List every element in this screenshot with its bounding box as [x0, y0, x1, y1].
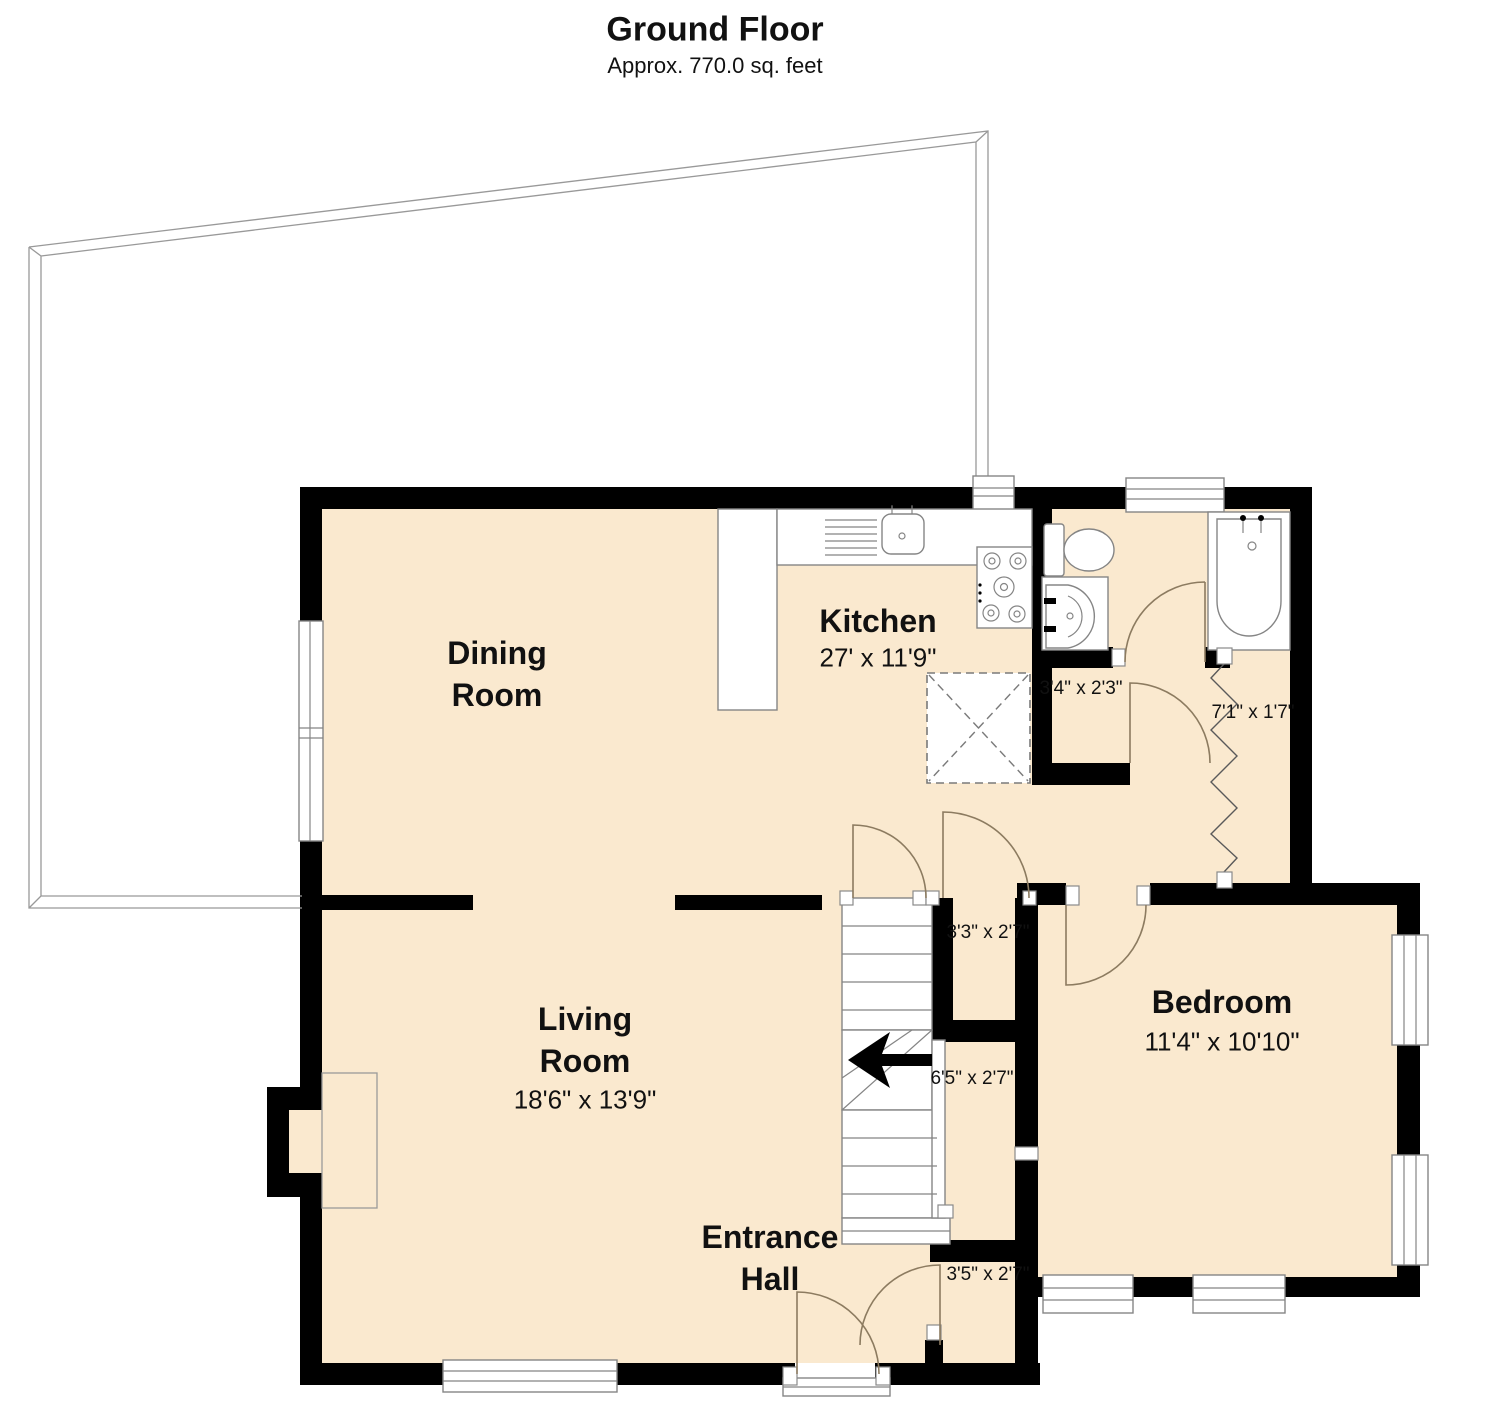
bedroom-window-east-upper	[1392, 935, 1428, 1045]
living-room-dims: 18'6" x 13'9"	[514, 1085, 657, 1116]
void-hatch-box	[927, 673, 1030, 783]
entrance-hall-label: Entrance Hall	[702, 1216, 839, 1300]
basin-icon	[1042, 577, 1108, 650]
fireplace-hearth	[322, 1073, 377, 1208]
bathtub-icon	[1208, 512, 1290, 650]
inner-hall-door-swing	[943, 812, 1029, 898]
dining-room-label: Dining Room	[447, 632, 547, 716]
hall-closet-dims: 6'5" x 2'7"	[930, 1068, 1013, 1090]
kitchen-dims: 27' x 11'9"	[820, 643, 937, 674]
bedroom-door-swing	[1066, 905, 1146, 985]
patio-doors	[299, 621, 323, 841]
entrance-hall-label-line1: Entrance	[702, 1216, 839, 1258]
page-subtitle: Approx. 770.0 sq. feet	[607, 53, 822, 79]
dining-room-label-line2: Room	[447, 674, 547, 716]
toilet-icon	[1044, 524, 1114, 576]
wc-lobby-door-swing	[1130, 683, 1210, 763]
living-room-label-line2: Room	[538, 1040, 632, 1082]
bedroom-label: Bedroom	[1152, 981, 1292, 1023]
zigzag-closet-front	[1211, 664, 1237, 872]
bedroom-dims: 11'4" x 10'10"	[1144, 1027, 1299, 1058]
airing-corridor-dims: 7'1" x 1'7"	[1211, 702, 1294, 724]
entry-closet-dims: 3'5" x 2'7"	[946, 1264, 1029, 1286]
entrance-hall-label-line2: Hall	[702, 1258, 839, 1300]
bedroom-window-east-lower	[1392, 1155, 1428, 1265]
living-room-window	[443, 1360, 617, 1392]
front-door-swing	[797, 1292, 879, 1374]
living-room-label-line1: Living	[538, 998, 632, 1040]
bathroom-door-swing	[1125, 582, 1205, 662]
front-door-threshold	[783, 1378, 890, 1396]
bedroom-window-south-right	[1193, 1275, 1285, 1313]
page-title: Ground Floor	[606, 11, 823, 50]
deck-pillar	[973, 476, 1014, 512]
wc-lobby-dims: 3'4" x 2'3"	[1039, 678, 1122, 700]
hob-icon	[977, 547, 1032, 628]
kitchen-label: Kitchen	[819, 600, 936, 642]
floorplan-canvas: Ground Floor Approx. 770.0 sq. feet Dini…	[0, 0, 1500, 1407]
dining-room-label-line1: Dining	[447, 632, 547, 674]
bathroom-window	[1126, 478, 1224, 512]
bedroom-window-south-left	[1043, 1275, 1133, 1313]
landing-closet-dims: 3'3" x 2'7"	[946, 922, 1029, 944]
stairs-door-swing	[853, 825, 926, 898]
living-room-label: Living Room	[538, 998, 632, 1082]
